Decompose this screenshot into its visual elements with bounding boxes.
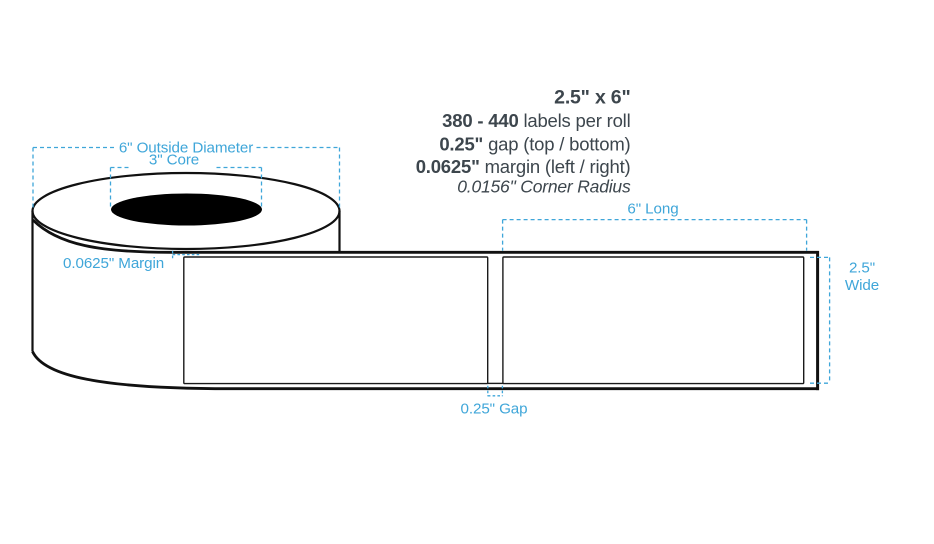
wide-dimension-lines [810,257,830,383]
label-length-label: 6" Long [627,201,678,218]
label-rect-1 [184,257,488,384]
roll-core-ellipse [111,194,262,226]
spec-size-title: 2.5" x 6" [554,87,630,109]
spec-labels-per-roll-value: 380 - 440 [442,110,518,131]
roll-margin-label: 0.0625" Margin [63,255,164,272]
spec-margin-value: 0.0625" [416,156,480,177]
long-dimension-lines [503,220,807,251]
spec-gap-value: 0.25" [439,133,483,154]
diagram-svg: 2.5" x 6" 380 - 440 labels per roll 0.25… [0,0,934,544]
spec-gap-label: gap (top / bottom) [483,133,630,154]
label-rect-2 [503,257,804,384]
label-roll-spec-diagram: 2.5" x 6" 380 - 440 labels per roll 0.25… [0,0,934,544]
spec-labels-per-roll: 380 - 440 labels per roll [442,110,630,131]
spec-corner-radius: 0.0156" Corner Radius [457,177,631,197]
label-width-label-line2: Wide [845,277,879,294]
spec-gap: 0.25" gap (top / bottom) [439,133,630,154]
spec-labels-per-roll-label: labels per roll [519,110,631,131]
spec-margin: 0.0625" margin (left / right) [416,156,631,177]
label-gap-label: 0.25" Gap [461,400,528,417]
label-width-label-line1: 2.5" [849,260,875,277]
spec-margin-label: margin (left / right) [480,156,631,177]
core-label: 3" Core [149,151,199,168]
